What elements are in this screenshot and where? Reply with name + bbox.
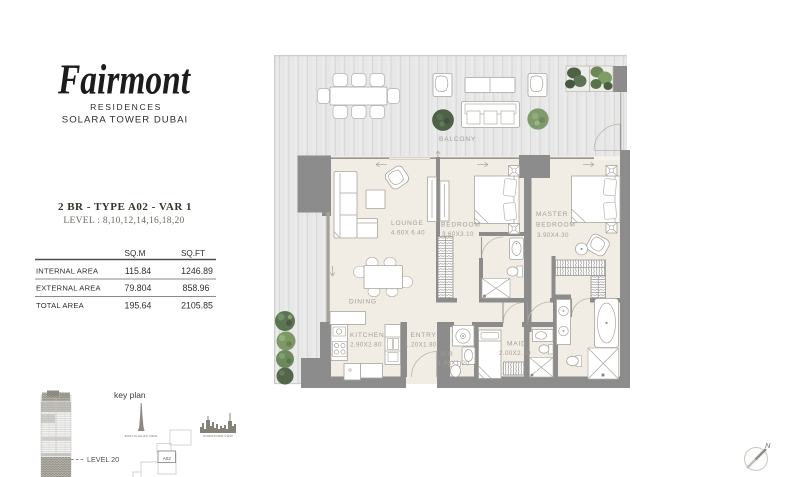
svg-text:DINING: DINING [349,299,377,306]
svg-text:LOUNGE: LOUNGE [391,220,424,227]
svg-text:MAID: MAID [507,341,527,348]
svg-text:1.20X1.80: 1.20X1.80 [405,342,437,349]
svg-text:ENTRY: ENTRY [411,332,437,339]
svg-text:195.64: 195.64 [125,301,152,311]
svg-text:EXTERNAL AREA: EXTERNAL AREA [36,284,102,293]
svg-text:BEDROOM: BEDROOM [441,222,481,229]
svg-text:N: N [765,441,771,450]
svg-text:1246.89: 1246.89 [181,266,213,276]
svg-text:LEVEL 20: LEVEL 20 [87,455,119,464]
svg-text:SQ.M: SQ.M [125,249,146,258]
svg-text:DOWNTOWN VIEW: DOWNTOWN VIEW [203,434,233,438]
svg-text:2.90X2.80: 2.90X2.80 [350,342,382,349]
svg-text:115.84: 115.84 [125,266,151,276]
svg-text:BALCONY: BALCONY [439,136,476,143]
svg-text:2105.85: 2105.85 [181,301,213,311]
svg-text:P.R: P.R [441,351,454,358]
svg-text:RESIDENCES: RESIDENCES [90,102,162,112]
svg-text:BURJ KHALIFA VIEW: BURJ KHALIFA VIEW [125,434,158,438]
svg-text:SOLARA TOWER DUBAI: SOLARA TOWER DUBAI [62,115,188,126]
svg-text:858.96: 858.96 [183,283,210,293]
svg-text:MASTER: MASTER [536,211,568,218]
svg-text:Fairmont: Fairmont [57,58,191,104]
svg-text:INTERNAL AREA: INTERNAL AREA [36,267,99,276]
svg-text:3.90X4.30: 3.90X4.30 [537,232,569,239]
svg-text:4.60X 6.40: 4.60X 6.40 [391,230,425,237]
svg-text:2 BR - TYPE A02 - VAR 1: 2 BR - TYPE A02 - VAR 1 [58,201,192,213]
svg-text:KITCHEN: KITCHEN [350,332,385,339]
svg-text:79.804: 79.804 [125,283,152,293]
svg-text:A02: A02 [163,456,172,461]
svg-text:LEVEL : 8,10,12,14,16,18,20: LEVEL : 8,10,12,14,16,18,20 [63,216,184,226]
svg-text:SQ.FT: SQ.FT [181,249,205,258]
svg-text:BEDROOM: BEDROOM [536,222,576,229]
svg-text:2.00X2.10: 2.00X2.10 [499,350,531,357]
svg-text:TOTAL AREA: TOTAL AREA [36,301,85,310]
svg-text:1.45X1.20: 1.45X1.20 [438,360,470,367]
svg-text:key plan: key plan [114,390,146,400]
